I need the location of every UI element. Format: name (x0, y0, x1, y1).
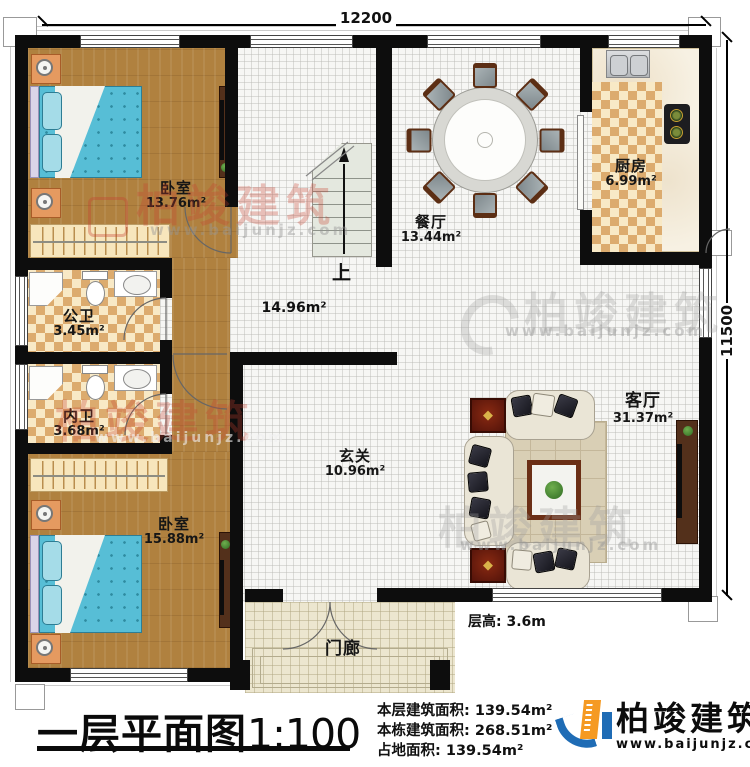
burner-icon (670, 126, 683, 139)
room-label-public-bath: 公卫 3.45m² (46, 308, 112, 340)
lamp-icon (36, 639, 53, 656)
window-pane-line (609, 39, 679, 40)
plan-title: 一层平面图1:100 (37, 700, 360, 760)
sofa-cushion (554, 547, 578, 571)
wall (580, 210, 592, 252)
window (427, 35, 541, 48)
basin-icon (610, 55, 628, 76)
wardrobe-bedroom2 (30, 458, 168, 492)
dining-table-center (477, 132, 493, 148)
window (70, 668, 188, 682)
wall (15, 443, 172, 454)
toilet-tank (82, 271, 108, 280)
room-area: 3.45m² (46, 325, 112, 340)
window (15, 364, 28, 430)
nightstand (31, 188, 61, 218)
sofa-cushion (511, 549, 533, 571)
lamp-icon (36, 59, 53, 76)
room-name: 餐厅 (394, 214, 468, 231)
floor-height-note: 层高: 3.6m (468, 611, 598, 631)
pillow (42, 92, 62, 130)
pillow (42, 134, 62, 172)
room-area: 31.37m² (606, 412, 680, 427)
nightstand (31, 634, 61, 664)
side-table: ◆ (470, 548, 506, 583)
room-label-living: 客厅 31.37m² (606, 392, 680, 426)
plant-icon (683, 426, 693, 436)
room-label-kitchen: 厨房 6.99m² (598, 158, 664, 190)
plant-icon (545, 481, 563, 499)
dimension-right-label: 11500 (718, 303, 736, 359)
room-area: 10.96m² (318, 465, 392, 480)
room-label-porch: 门廊 (310, 640, 376, 660)
sofa-cushion (531, 393, 556, 418)
stat-value: 139.54m² (475, 703, 552, 719)
ledge-line (10, 35, 11, 682)
room-name: 玄关 (318, 448, 392, 465)
logo-tower-icon (580, 700, 601, 739)
bed-headboard (30, 86, 39, 178)
window (492, 588, 662, 602)
window-pane-line (81, 44, 179, 45)
stair-arrow-shaft (343, 164, 345, 254)
sofa-cushion (510, 394, 533, 417)
wall (230, 660, 250, 690)
window-pane-line (19, 365, 20, 429)
kitchen-door-leaf (577, 115, 584, 210)
window-pane-line (81, 39, 179, 40)
wall (230, 352, 397, 365)
dining-chair (540, 129, 565, 153)
basin-icon (123, 369, 151, 389)
tv-icon (220, 100, 224, 160)
room-area: 13.76m² (138, 197, 214, 212)
area-stats: 本层建筑面积: 139.54m² 本栋建筑面积: 268.51m² 占地面积: … (377, 701, 552, 761)
tv-icon (220, 560, 224, 615)
room-area: 15.88m² (134, 533, 214, 548)
room-name: 公卫 (46, 308, 112, 325)
plant-icon (221, 540, 230, 549)
window (699, 268, 712, 338)
room-name: 内卫 (46, 408, 112, 425)
wardrobe-rail (33, 241, 167, 243)
dimension-top-label: 12200 (336, 9, 396, 27)
window-pane-line (251, 44, 352, 45)
stair-up-arrow (339, 147, 349, 162)
wall (15, 258, 172, 270)
sofa-cushion (468, 496, 491, 519)
stair-treads (313, 166, 371, 256)
window-pane-line (493, 597, 661, 598)
window (80, 35, 180, 48)
wall (580, 48, 592, 112)
stat-value: 139.54m² (446, 743, 523, 759)
stat-label: 占地面积: (377, 743, 441, 759)
title-block: 一层平面图1:100 本层建筑面积: 139.54m² 本栋建筑面积: 268.… (0, 693, 750, 767)
title-underline (37, 746, 350, 751)
stair-up-label: 上 (332, 258, 351, 285)
window (608, 35, 680, 48)
room-label-bedroom2: 卧室 15.88m² (134, 516, 214, 548)
window-pane-line (71, 677, 187, 678)
window-pane-line (428, 44, 540, 45)
room-area: 3.68m² (46, 425, 112, 440)
wall (230, 358, 243, 668)
stat-value: 268.51m² (475, 723, 552, 739)
room-area: 6.99m² (598, 175, 664, 190)
wall (376, 48, 392, 267)
sofa-cushion (467, 471, 489, 493)
window-pane-line (428, 39, 540, 40)
room-name: 卧室 (134, 516, 214, 533)
sink-private-bath (114, 365, 157, 391)
logo-tower-icon (602, 712, 612, 739)
lamp-icon (36, 505, 53, 522)
pillow (42, 585, 62, 625)
wall (160, 258, 172, 298)
room-label-bedroom1: 卧室 13.76m² (138, 180, 214, 212)
dining-chair (473, 193, 497, 218)
wardrobe-rail (33, 475, 165, 477)
window-pane-line (24, 365, 25, 429)
logo-windows-icon (583, 704, 592, 734)
toilet-public-bath (86, 281, 105, 306)
wall (15, 352, 172, 364)
brand-logo (560, 698, 616, 760)
side-table: ◆ (470, 398, 506, 433)
burner-icon (670, 109, 683, 122)
floor-plan: 上 ◆ ◆ (0, 0, 750, 767)
window-pane-line (609, 44, 679, 45)
window (250, 35, 353, 48)
stat-label: 本层建筑面积: (377, 703, 470, 719)
brand-text: 柏竣建筑 www.baijunjz.com (616, 701, 750, 752)
toilet-tank (82, 365, 108, 374)
compass-icon: ◆ (483, 408, 493, 423)
basin-icon (123, 275, 151, 295)
brand-name: 柏竣建筑 (616, 701, 750, 737)
wardrobe-bedroom1 (30, 224, 170, 258)
ledge-line (716, 48, 717, 600)
floor-doorway1 (225, 207, 238, 258)
sink-public-bath (114, 271, 157, 297)
bed-headboard (30, 535, 39, 633)
lamp-icon (36, 193, 53, 210)
window-pane-line (708, 269, 709, 337)
brand-website: www.baijunjz.com (616, 737, 750, 752)
nightstand (31, 500, 61, 530)
kitchen-stove (664, 104, 690, 144)
room-label-hall-area: 14.96m² (256, 300, 332, 316)
porch-step-inner (260, 656, 440, 684)
wall (430, 660, 450, 690)
room-name: 卧室 (138, 180, 214, 197)
basin-icon (630, 55, 648, 76)
wall (160, 364, 172, 394)
room-name: 厨房 (598, 158, 664, 175)
dining-chair (473, 63, 497, 88)
window (15, 276, 28, 346)
room-label-foyer: 玄关 10.96m² (318, 448, 392, 480)
floor-corridor (172, 258, 230, 452)
window-pane-line (19, 277, 20, 345)
compass-icon: ◆ (483, 558, 493, 573)
ledge-line (15, 30, 712, 31)
pillow (42, 541, 62, 581)
room-label-private-bath: 内卫 3.68m² (46, 408, 112, 440)
window-pane-line (493, 593, 661, 594)
wall (245, 589, 283, 602)
wall (160, 340, 172, 364)
sofa-cushion (532, 550, 555, 573)
room-label-dining: 餐厅 13.44m² (394, 214, 468, 246)
nightstand (31, 54, 61, 84)
window-pane-line (703, 269, 704, 337)
window-pane-line (71, 673, 187, 674)
dining-chair (407, 129, 432, 153)
stat-label: 本栋建筑面积: (377, 723, 470, 739)
wall (225, 48, 238, 207)
room-name: 客厅 (606, 392, 680, 412)
room-area: 13.44m² (394, 231, 468, 246)
stat-row: 本栋建筑面积: 268.51m² (377, 721, 552, 741)
wall (580, 252, 712, 265)
wall (160, 435, 172, 454)
toilet-private-bath (86, 375, 105, 400)
window-pane-line (251, 39, 352, 40)
tv-icon (677, 444, 682, 518)
stat-row: 占地面积: 139.54m² (377, 741, 552, 761)
stat-row: 本层建筑面积: 139.54m² (377, 701, 552, 721)
window-pane-line (24, 277, 25, 345)
ledge-line (15, 685, 248, 686)
room-name: 门廊 (310, 640, 376, 660)
kitchen-sink (606, 50, 650, 78)
